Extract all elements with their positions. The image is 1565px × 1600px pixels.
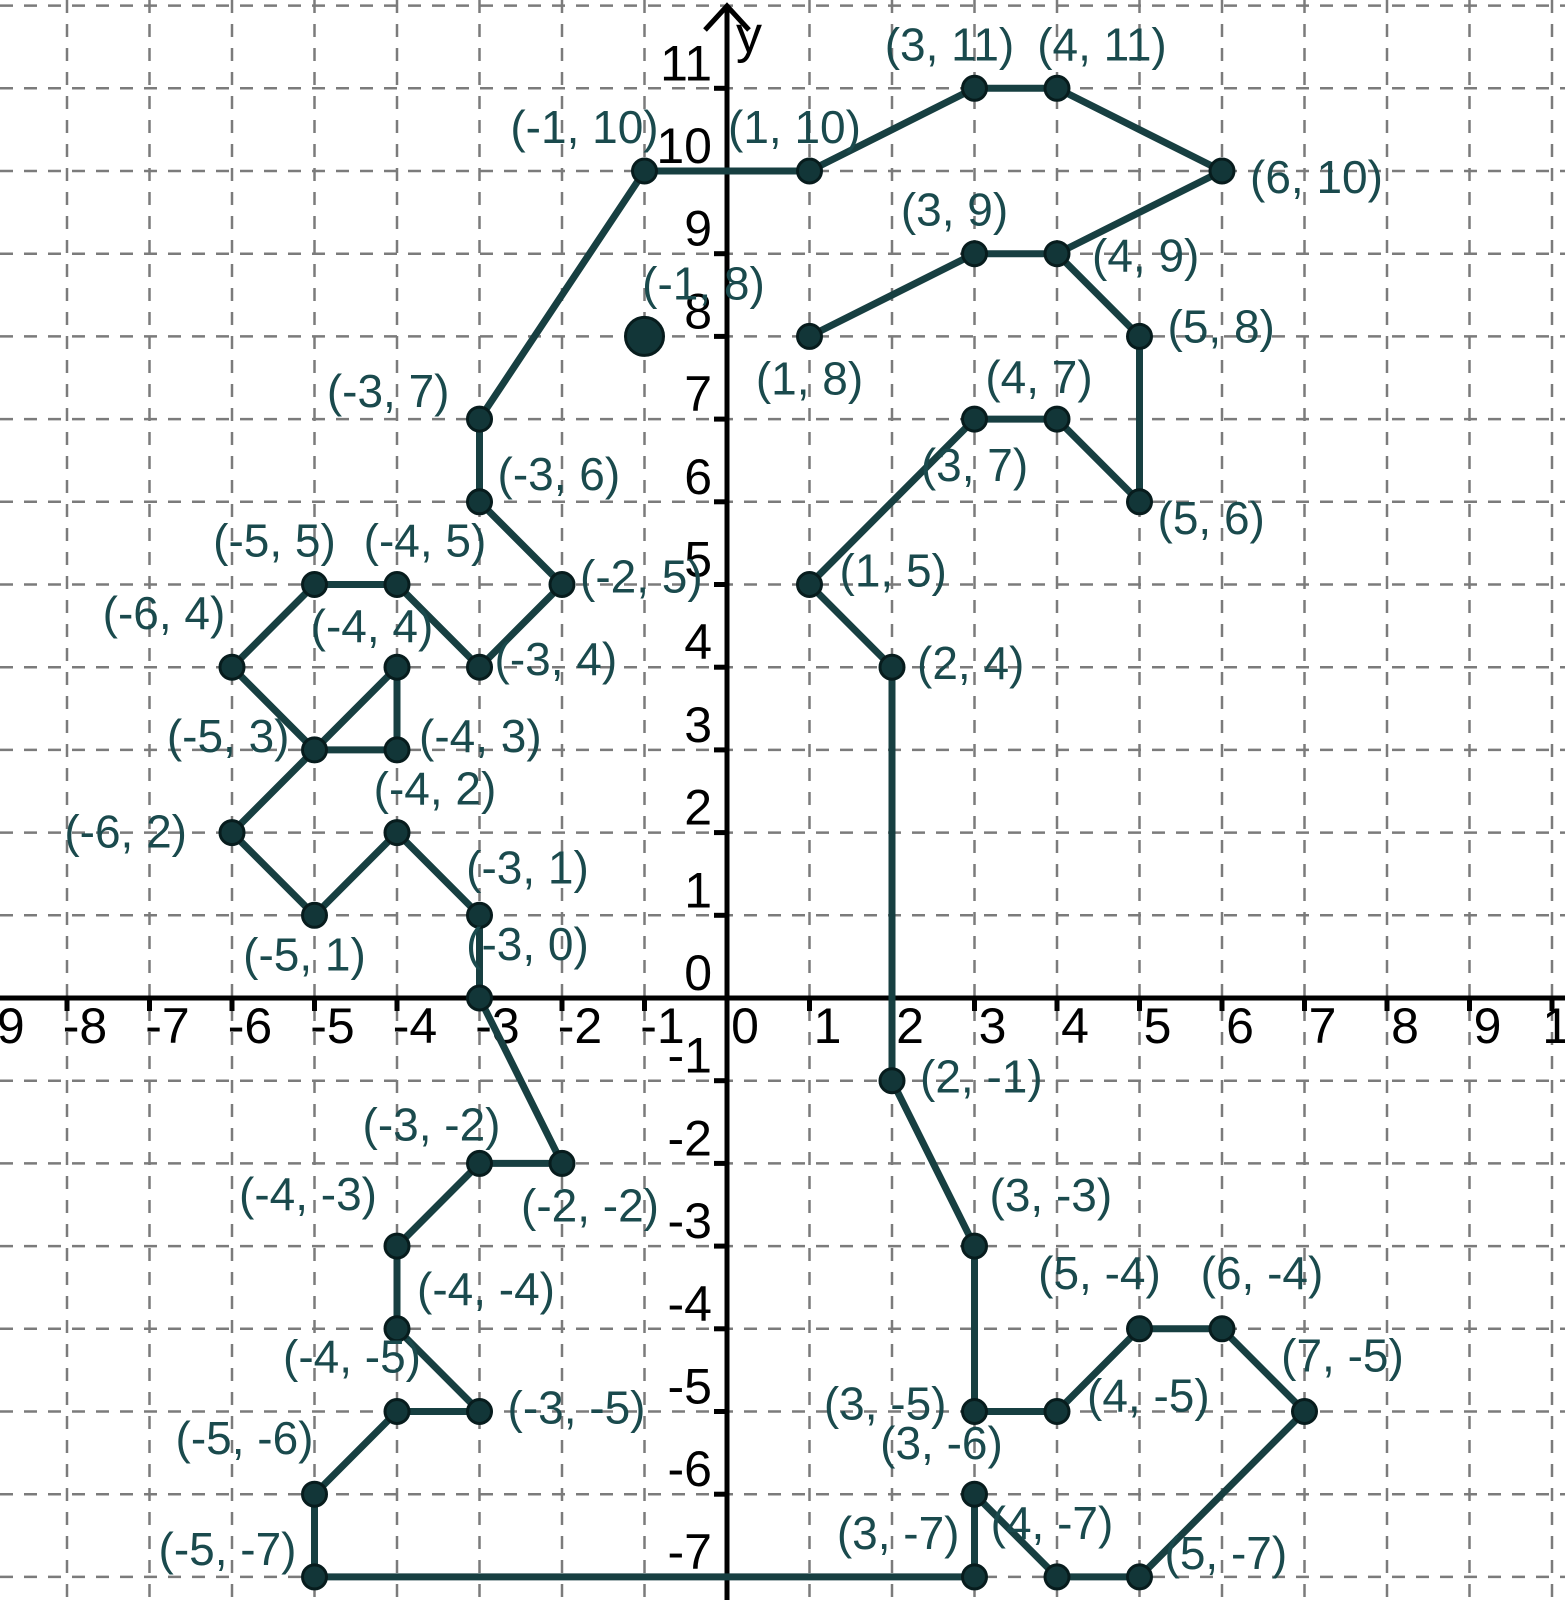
data-point	[963, 1482, 987, 1506]
y-axis-tick-label: 3	[684, 697, 712, 753]
y-axis-tick-label: -5	[668, 1359, 712, 1415]
point-label: (-5, 5)	[213, 515, 336, 567]
point-label: (-4, 5)	[364, 515, 487, 567]
data-point	[468, 1151, 492, 1175]
point-label: (-2, -2)	[521, 1179, 659, 1231]
point-label: (-5, -7)	[159, 1523, 297, 1575]
point-label: (-6, 4)	[103, 587, 226, 639]
data-point	[468, 986, 492, 1010]
eye-point	[626, 317, 664, 355]
y-axis-tick-label: 9	[684, 201, 712, 257]
data-point	[550, 573, 574, 597]
data-point	[385, 655, 409, 679]
data-point	[550, 1151, 574, 1175]
x-axis-tick-label: 5	[1144, 998, 1172, 1054]
data-point	[1128, 324, 1152, 348]
point-label: (6, -4)	[1201, 1247, 1324, 1299]
y-axis-tick-label: 6	[684, 449, 712, 505]
point-label: (-1, 10)	[510, 101, 658, 153]
data-point	[1045, 242, 1069, 266]
x-axis-tick-label: -7	[145, 998, 189, 1054]
point-label: (-4, -4)	[417, 1263, 555, 1315]
data-point	[468, 407, 492, 431]
x-axis-tick-label: 1	[814, 998, 842, 1054]
point-label: (5, 8)	[1168, 300, 1275, 352]
y-axis-tick-label: -7	[668, 1524, 712, 1580]
data-point	[1293, 1400, 1317, 1424]
point-label: (3, 11)	[885, 18, 1015, 70]
x-axis-tick-label: 8	[1391, 998, 1419, 1054]
point-label: (4, 11)	[1037, 18, 1167, 70]
data-point	[385, 821, 409, 845]
point-label: (5, -7)	[1165, 1527, 1288, 1579]
y-axis-tick-label: 1	[684, 862, 712, 918]
y-axis-tick-label: -3	[668, 1193, 712, 1249]
point-label: (-4, 2)	[374, 763, 497, 815]
coordinate-plane: -9-8-7-6-5-4-3-2-10123456789101110987654…	[0, 0, 1565, 1600]
seahorse-connect-the-dots-plot: -9-8-7-6-5-4-3-2-10123456789101110987654…	[0, 0, 1565, 1600]
y-axis-tick-label: 10	[656, 118, 712, 174]
data-point	[880, 655, 904, 679]
eye-point-label: (-1, 8)	[642, 257, 765, 309]
point-label: (4, 9)	[1092, 230, 1199, 282]
x-axis-tick-label: 6	[1226, 998, 1254, 1054]
data-point	[385, 1400, 409, 1424]
data-point	[220, 821, 244, 845]
data-point	[468, 490, 492, 514]
point-label: (-3, 1)	[466, 841, 589, 893]
x-axis-tick-label: -4	[393, 998, 437, 1054]
data-point	[963, 1565, 987, 1589]
x-axis-tick-label: 7	[1309, 998, 1337, 1054]
data-point	[1128, 1565, 1152, 1589]
y-axis-tick-label: 7	[684, 366, 712, 422]
point-label: (-4, 3)	[419, 710, 542, 762]
point-label: (-3, 7)	[327, 365, 450, 417]
data-point	[220, 655, 244, 679]
y-axis-tick-label: -4	[668, 1276, 712, 1332]
y-axis-tick-label: 4	[684, 614, 712, 670]
point-label: (-5, 1)	[243, 928, 366, 980]
point-label: (4, 7)	[985, 351, 1092, 403]
data-point	[385, 573, 409, 597]
point-label: (6, 10)	[1250, 151, 1383, 203]
point-label: (-6, 2)	[64, 806, 187, 858]
data-point	[798, 159, 822, 183]
data-point	[963, 1234, 987, 1258]
data-point	[1045, 1400, 1069, 1424]
point-label: (3, -3)	[990, 1169, 1113, 1221]
point-label: (4, -5)	[1087, 1370, 1210, 1422]
data-point	[303, 738, 327, 762]
point-label: (2, 4)	[917, 637, 1024, 689]
point-label: (5, -4)	[1038, 1247, 1161, 1299]
point-label: (3, -7)	[837, 1507, 960, 1559]
data-point	[633, 159, 657, 183]
data-point	[1210, 1317, 1234, 1341]
y-axis-tick-label: -1	[668, 1028, 712, 1084]
data-point	[385, 738, 409, 762]
data-point	[303, 903, 327, 927]
x-axis-tick-label: -2	[558, 998, 602, 1054]
data-point	[1210, 159, 1234, 183]
point-label: (-5, -6)	[176, 1412, 314, 1464]
data-point	[963, 76, 987, 100]
point-label: (1, 5)	[840, 545, 947, 597]
point-label: (1, 10)	[728, 101, 861, 153]
point-label: (-4, -3)	[239, 1168, 377, 1220]
data-point	[798, 324, 822, 348]
point-label: (7, -5)	[1281, 1330, 1404, 1382]
x-axis-tick-label: 10	[1542, 998, 1565, 1054]
point-label: (-3, -2)	[363, 1098, 501, 1150]
point-label: (-4, -5)	[283, 1331, 421, 1383]
x-axis-tick-label: 4	[1061, 998, 1089, 1054]
data-point	[1045, 76, 1069, 100]
y-axis-tick-label: 0	[684, 945, 712, 1001]
data-point	[303, 1565, 327, 1589]
data-point	[303, 1482, 327, 1506]
y-axis-tick-label: -2	[668, 1110, 712, 1166]
data-point	[1045, 407, 1069, 431]
x-axis-tick-label: -8	[63, 998, 107, 1054]
point-label: (-2, 5)	[580, 551, 703, 603]
point-label: (-3, 6)	[498, 448, 621, 500]
point-label: (-5, 3)	[167, 710, 290, 762]
point-label: (4, -7)	[991, 1497, 1114, 1549]
point-label: (3, -6)	[880, 1417, 1003, 1469]
y-axis-tick-label: -6	[668, 1441, 712, 1497]
point-label: (-3, 4)	[495, 633, 618, 685]
point-label: (-3, -5)	[508, 1382, 646, 1434]
y-axis-label: y	[736, 6, 762, 64]
point-label: (2, -1)	[920, 1051, 1043, 1103]
data-point	[880, 1069, 904, 1093]
y-axis-tick-label: 2	[684, 780, 712, 836]
data-point	[963, 407, 987, 431]
data-point	[385, 1234, 409, 1258]
data-point	[1128, 1317, 1152, 1341]
point-label: (-3, 0)	[466, 918, 589, 970]
data-point	[798, 573, 822, 597]
point-label: (3, 9)	[901, 184, 1008, 236]
x-axis-tick-label: 2	[896, 998, 924, 1054]
x-axis-tick-label: -6	[228, 998, 272, 1054]
x-axis-tick-label: -9	[0, 998, 25, 1054]
y-axis-tick-label: 11	[660, 35, 712, 91]
x-axis-tick-label: 3	[979, 998, 1007, 1054]
data-point	[303, 573, 327, 597]
data-point	[468, 1400, 492, 1424]
point-label: (5, 6)	[1158, 492, 1265, 544]
data-point	[468, 655, 492, 679]
point-label: (-4, 4)	[311, 600, 434, 652]
x-axis-tick-label: -5	[310, 998, 354, 1054]
x-axis-tick-label: 9	[1474, 998, 1502, 1054]
point-label: (1, 8)	[756, 352, 863, 404]
point-label: (3, 7)	[921, 439, 1028, 491]
x-axis-tick-label: 0	[731, 998, 759, 1054]
data-point	[1045, 1565, 1069, 1589]
data-point	[1128, 490, 1152, 514]
data-point	[963, 242, 987, 266]
